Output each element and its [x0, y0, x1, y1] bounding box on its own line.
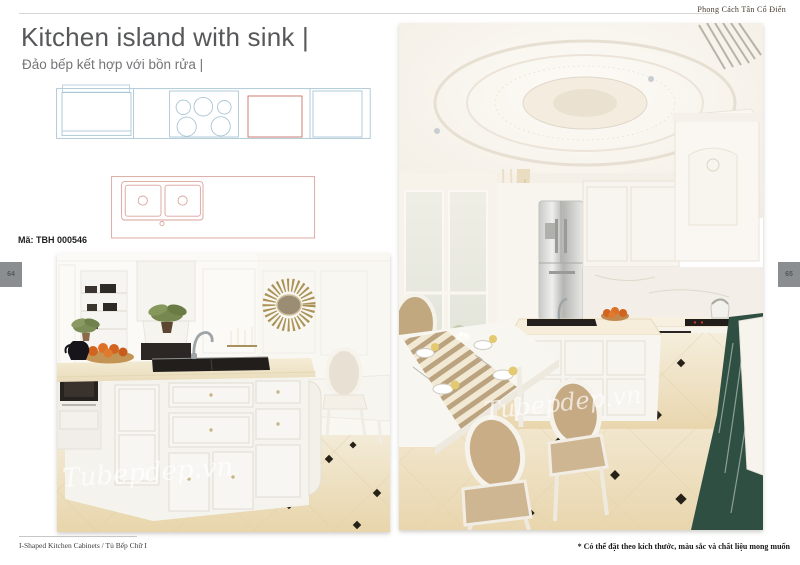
- corbel-leg: [309, 381, 321, 495]
- page-number-left: 64: [0, 262, 22, 287]
- photo-kitchen-room: Tubepdep.vn: [399, 23, 763, 530]
- range-hood: [673, 109, 763, 261]
- island-plan-drawing: [111, 175, 316, 240]
- header-rule: [19, 13, 713, 14]
- page-number-right: 65: [778, 262, 800, 287]
- page-subtitle: Đảo bếp kết hợp với bồn rửa |: [22, 57, 203, 72]
- faucet-hole: [160, 222, 164, 226]
- cooktop-plan: [170, 91, 239, 137]
- sink-outline: [122, 182, 203, 220]
- style-label: Phong Cách Tân Cổ Điển: [697, 5, 786, 14]
- catalog-page: Phong Cách Tân Cổ Điển Kitchen island wi…: [0, 0, 800, 565]
- photo-kitchen-island: Tubepdep.vn: [57, 253, 390, 532]
- oven-plan: [248, 96, 302, 137]
- counter-plan-drawing: [56, 84, 371, 141]
- upper-cabinets: [583, 181, 679, 267]
- island-base: [65, 377, 321, 521]
- page-title: Kitchen island with sink |: [21, 22, 309, 53]
- footer-caption-en-vi: I-Shaped Kitchen Cabinets / Tủ Bếp Chữ I: [19, 541, 147, 550]
- footer-note: * Có thể đặt theo kích thước, màu sắc và…: [578, 542, 790, 551]
- product-code: Mã: TBH 000546: [18, 235, 87, 245]
- backsplash: [583, 267, 763, 317]
- footer-rule: [19, 536, 137, 537]
